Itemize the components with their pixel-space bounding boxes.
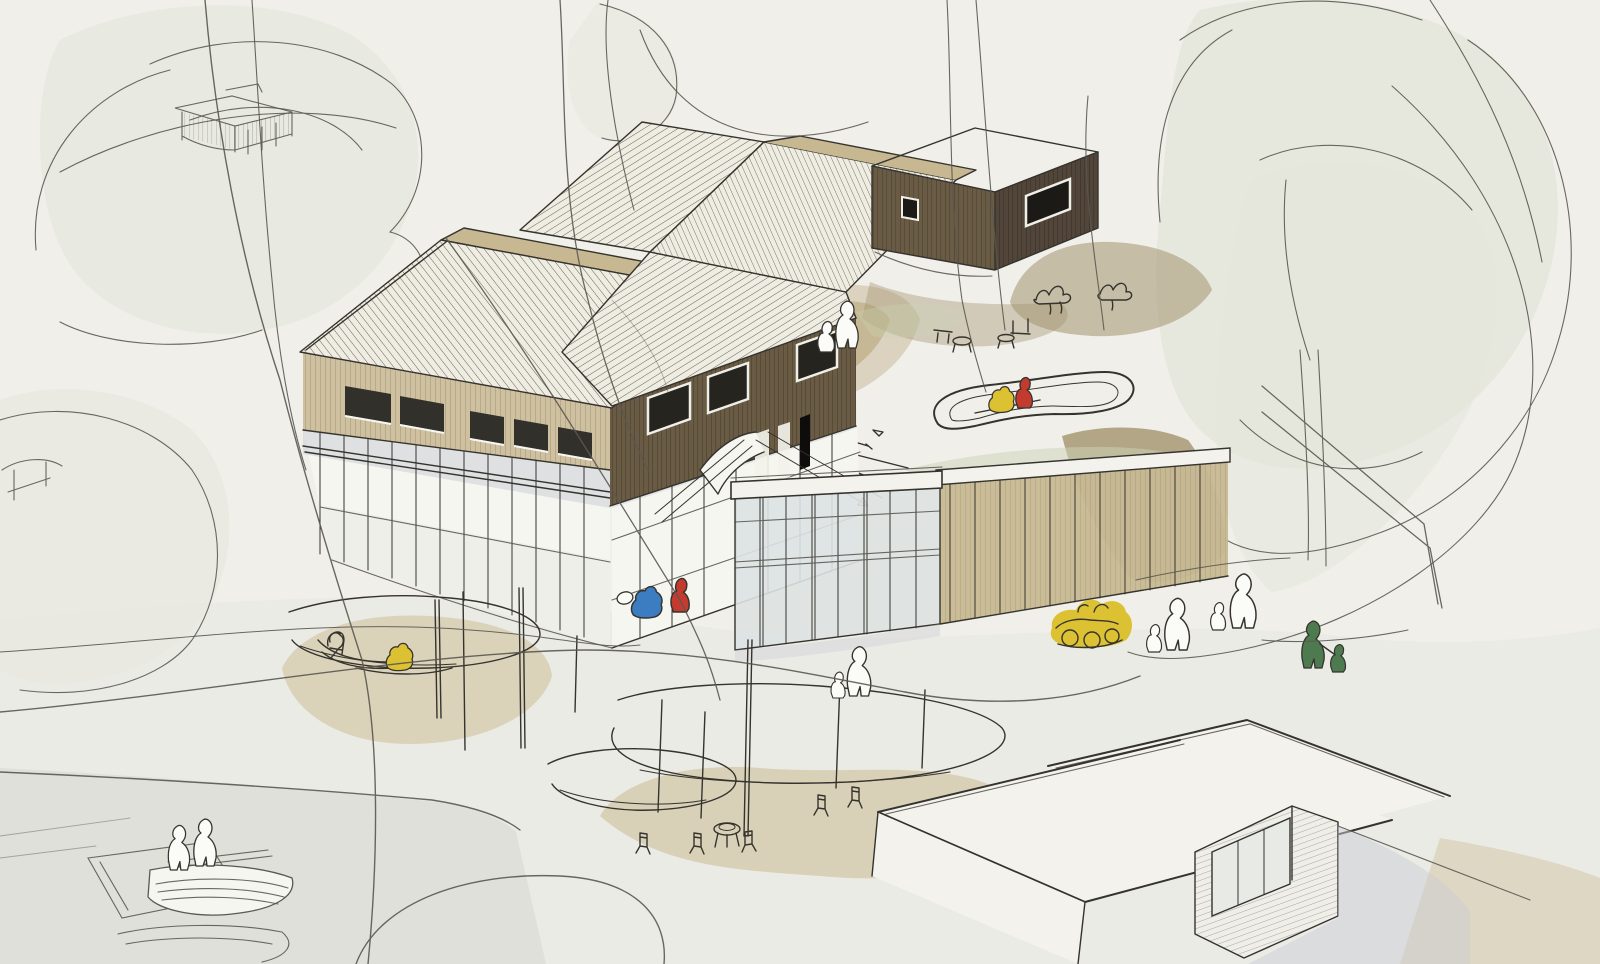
artwork-canvas <box>0 0 1600 964</box>
pavilion-facade-front <box>731 467 942 650</box>
sketch-scene <box>0 0 1600 964</box>
annex-window-small <box>902 197 918 220</box>
